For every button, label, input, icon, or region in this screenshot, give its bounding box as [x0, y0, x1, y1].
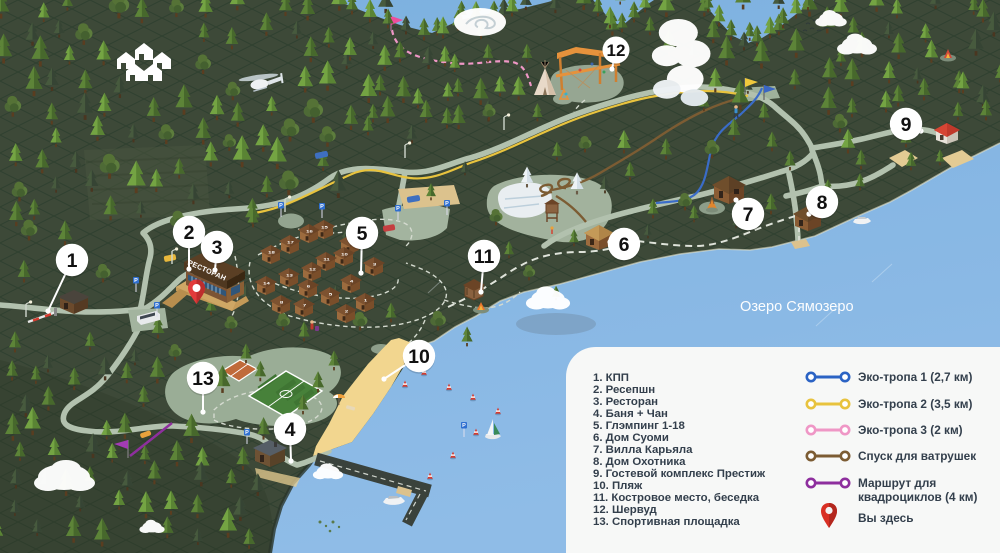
svg-text:Озеро Сямозеро: Озеро Сямозеро — [740, 299, 854, 315]
svg-text:3. Ресторан: 3. Ресторан — [593, 396, 658, 408]
svg-text:P: P — [462, 423, 466, 429]
svg-text:12: 12 — [607, 41, 626, 60]
svg-text:10: 10 — [341, 252, 348, 256]
svg-text:6. Дом Суоми: 6. Дом Суоми — [593, 432, 669, 444]
svg-text:Вы здесь: Вы здесь — [858, 511, 913, 525]
svg-text:14: 14 — [263, 281, 270, 285]
svg-text:8. Дом Охотника: 8. Дом Охотника — [593, 456, 686, 468]
svg-text:1. КПП: 1. КПП — [593, 372, 629, 384]
svg-text:5. Глэмпинг 1-18: 5. Глэмпинг 1-18 — [593, 420, 685, 432]
svg-text:10: 10 — [408, 346, 430, 368]
svg-text:P: P — [445, 201, 449, 207]
svg-text:8: 8 — [280, 300, 284, 304]
svg-text:P: P — [155, 303, 159, 309]
svg-text:8: 8 — [817, 192, 828, 214]
svg-text:6: 6 — [307, 284, 311, 288]
svg-text:16: 16 — [306, 229, 313, 233]
svg-text:6: 6 — [619, 234, 630, 256]
svg-text:13: 13 — [192, 368, 214, 390]
svg-text:7. Вилла Карьяла: 7. Вилла Карьяла — [593, 444, 693, 456]
svg-text:P: P — [320, 204, 324, 210]
svg-text:13: 13 — [286, 273, 293, 277]
svg-text:квадроциклов (4 км): квадроциклов (4 км) — [858, 490, 977, 504]
svg-text:Эко-тропа 3 (2 км): Эко-тропа 3 (2 км) — [858, 423, 963, 437]
svg-text:P: P — [134, 278, 138, 284]
svg-text:18: 18 — [268, 250, 275, 254]
svg-text:1: 1 — [67, 250, 78, 272]
svg-text:5: 5 — [329, 292, 333, 296]
svg-text:9. Гостевой комплекс Престиж: 9. Гостевой комплекс Престиж — [593, 468, 766, 480]
svg-text:13. Спортивная площадка: 13. Спортивная площадка — [593, 516, 740, 528]
svg-text:4. Баня + Чан: 4. Баня + Чан — [593, 408, 668, 420]
svg-text:2. Ресепшн: 2. Ресепшн — [593, 384, 655, 396]
svg-text:2: 2 — [184, 222, 195, 244]
svg-text:11: 11 — [474, 246, 495, 268]
svg-text:2: 2 — [345, 309, 349, 313]
svg-text:P: P — [396, 206, 400, 212]
svg-text:3: 3 — [212, 237, 223, 259]
svg-text:4: 4 — [285, 419, 296, 441]
svg-text:7: 7 — [303, 303, 307, 307]
svg-text:12: 12 — [309, 267, 316, 271]
svg-text:5: 5 — [357, 223, 368, 245]
svg-text:15: 15 — [321, 225, 328, 229]
svg-text:1: 1 — [364, 298, 368, 302]
svg-text:7: 7 — [743, 204, 754, 226]
svg-text:Эко-тропа 1 (2,7 км): Эко-тропа 1 (2,7 км) — [858, 370, 973, 384]
svg-text:9: 9 — [901, 114, 912, 136]
svg-text:P: P — [245, 430, 249, 436]
svg-text:Маршрут для: Маршрут для — [858, 476, 936, 490]
svg-text:P: P — [279, 203, 283, 209]
svg-text:11: 11 — [323, 257, 330, 261]
svg-text:17: 17 — [287, 240, 294, 244]
svg-text:Эко-тропа 2 (3,5 км): Эко-тропа 2 (3,5 км) — [858, 397, 973, 411]
svg-text:4: 4 — [350, 279, 354, 283]
svg-text:3: 3 — [373, 262, 377, 266]
svg-text:10. Пляж: 10. Пляж — [593, 480, 643, 492]
svg-text:11. Костровое место, беседка: 11. Костровое место, беседка — [593, 492, 760, 504]
svg-text:Спуск для ватрушек: Спуск для ватрушек — [858, 449, 976, 463]
svg-text:12. Шервуд: 12. Шервуд — [593, 504, 658, 516]
